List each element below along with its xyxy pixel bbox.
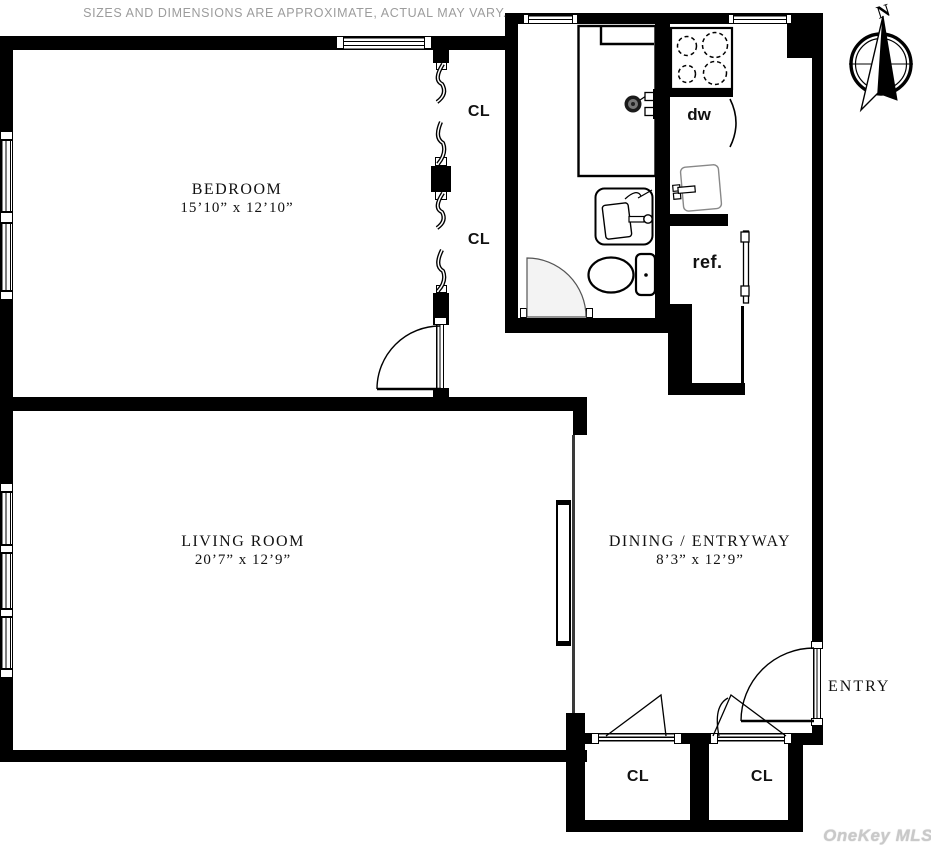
bedroom-label: BEDROOM <box>152 181 322 199</box>
fixtures-overlay: N <box>0 0 931 845</box>
closet-label-upper-2: CL <box>461 231 497 249</box>
living-room-dimensions: 20’7” x 12’9” <box>158 552 328 569</box>
closet-label-upper-1: CL <box>461 103 497 121</box>
floor-plan: N SIZES AND DIMENSIONS ARE APPROXIMATE, … <box>0 0 931 845</box>
stove-icon <box>671 28 732 89</box>
closet-label-lower-right: CL <box>744 768 780 786</box>
bathroom-door-swing <box>527 258 586 317</box>
compass-north-label: N <box>874 0 893 23</box>
accordion-door-icon <box>437 64 444 291</box>
closet-label-lower-left: CL <box>620 768 656 786</box>
compass-icon: N <box>849 0 913 110</box>
shower-icon <box>579 26 658 176</box>
disclaimer-text: SIZES AND DIMENSIONS ARE APPROXIMATE, AC… <box>60 6 530 20</box>
refrigerator-label: ref. <box>672 252 743 273</box>
closet-right-door-swing <box>713 695 786 736</box>
dishwasher-door-arc <box>730 99 736 147</box>
watermark-logo: OneKey MLS <box>823 826 931 845</box>
living-room-label: LIVING ROOM <box>158 533 328 551</box>
dining-dimensions: 8’3” x 12’9” <box>600 552 800 569</box>
dishwasher-label: dw <box>672 105 726 125</box>
kitchen-sink-icon <box>671 164 722 212</box>
toilet-icon <box>589 254 656 295</box>
bathroom-sink-icon <box>596 189 653 245</box>
closet-left-door-swing <box>606 695 666 736</box>
bedroom-dimensions: 15’10” x 12’10” <box>152 200 322 217</box>
bedroom-door-swing <box>377 326 441 389</box>
entry-label: ENTRY <box>828 678 918 696</box>
dining-label: DINING / ENTRYWAY <box>600 533 800 551</box>
